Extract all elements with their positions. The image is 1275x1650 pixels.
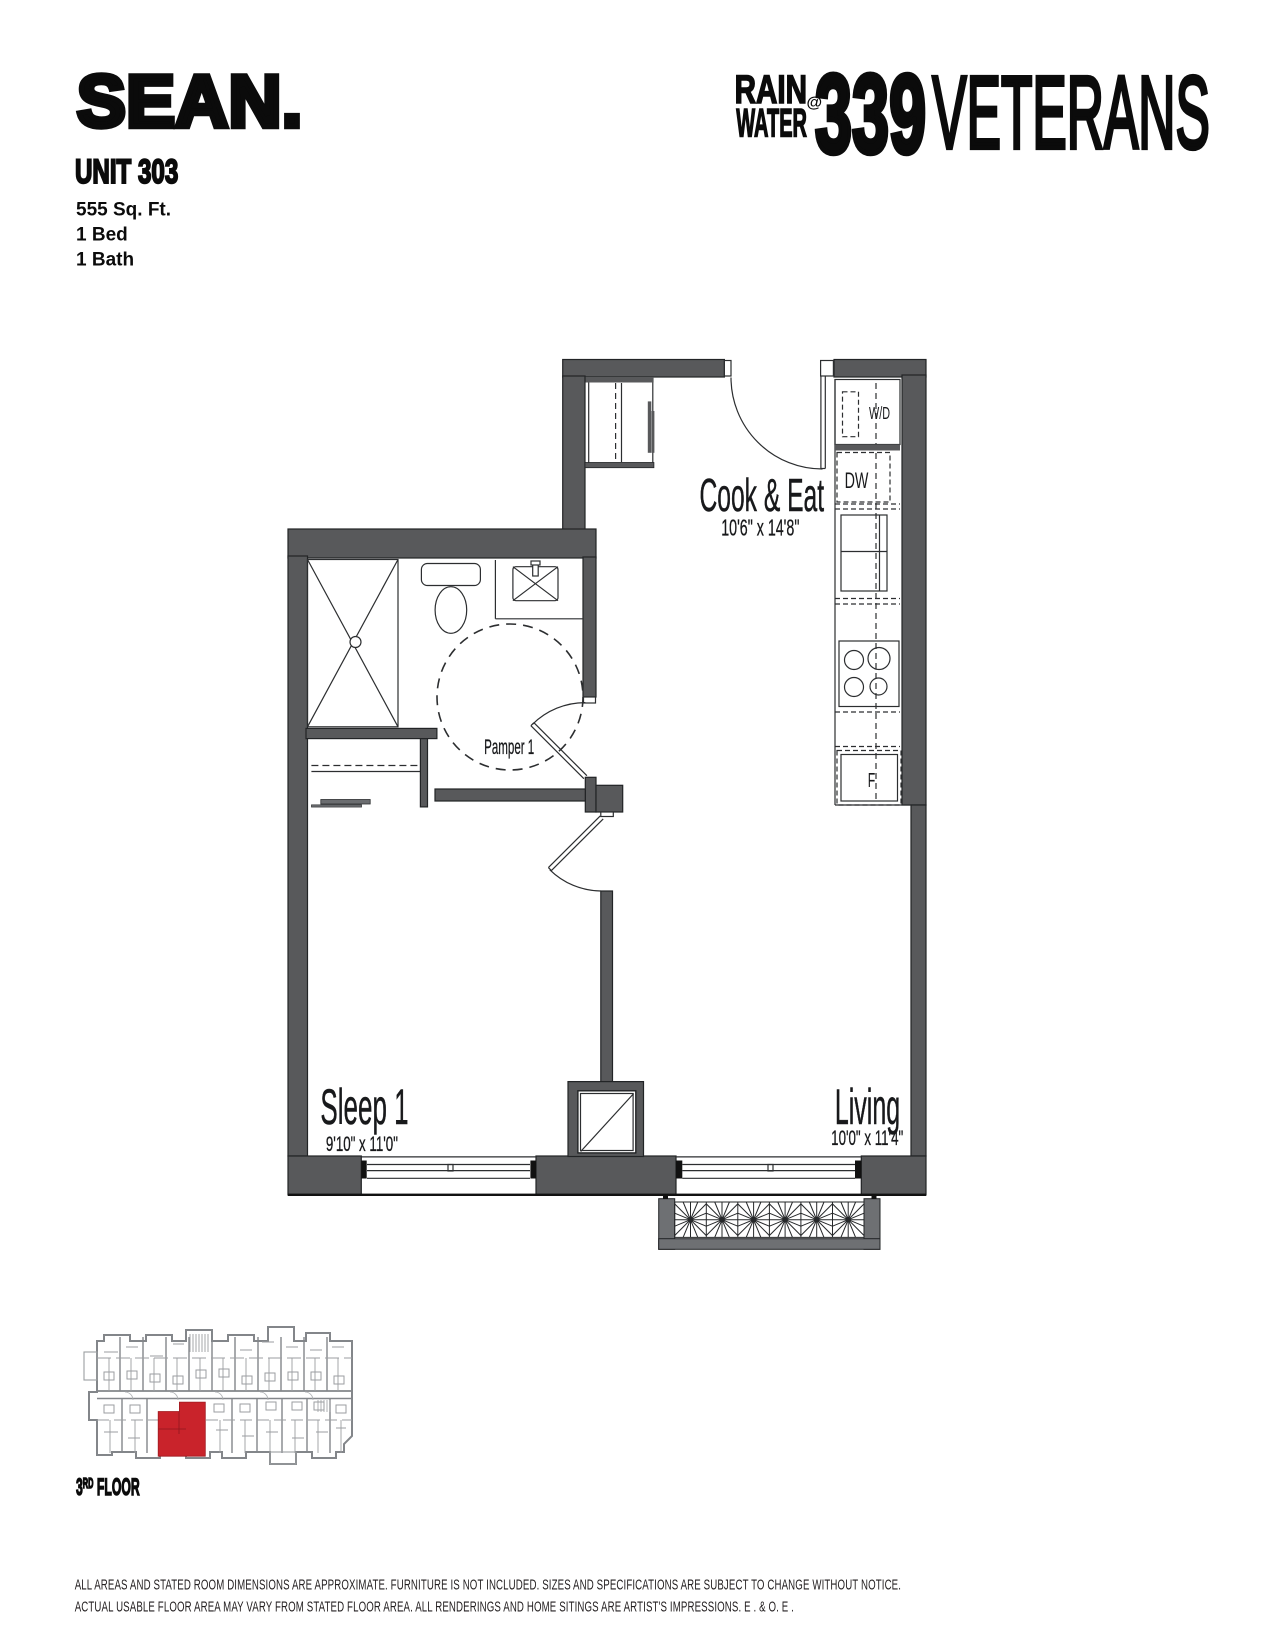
svg-text:DW: DW (845, 468, 869, 493)
svg-text:1 Bed: 1 Bed (76, 225, 128, 246)
svg-text:WATER: WATER (736, 100, 807, 146)
svg-text:SEAN.: SEAN. (77, 62, 303, 143)
svg-text:VETERANS: VETERANS (932, 56, 1210, 171)
svg-text:Sleep 1: Sleep 1 (320, 1080, 408, 1135)
svg-text:9'10" x 11'0": 9'10" x 11'0" (326, 1132, 398, 1156)
svg-text:ACTUAL USABLE FLOOR AREA MAY V: ACTUAL USABLE FLOOR AREA MAY VARY FROM S… (75, 1598, 794, 1615)
svg-text:Cook & Eat: Cook & Eat (699, 468, 824, 520)
svg-text:ALL AREAS AND STATED ROOM DIME: ALL AREAS AND STATED ROOM DIMENSIONS ARE… (75, 1576, 901, 1593)
svg-text:Pamper 1: Pamper 1 (484, 735, 534, 759)
svg-text:10'0" x 11'4": 10'0" x 11'4" (831, 1126, 903, 1150)
svg-text:1 Bath: 1 Bath (76, 249, 134, 270)
svg-text:555 Sq. Ft.: 555 Sq. Ft. (76, 200, 171, 221)
svg-text:W/D: W/D (869, 404, 890, 423)
svg-text:10'6" x 14'8": 10'6" x 14'8" (721, 516, 799, 541)
svg-text:UNIT 303: UNIT 303 (75, 153, 178, 191)
svg-text:F: F (868, 769, 876, 792)
svg-text:3RD FLOOR: 3RD FLOOR (76, 1475, 140, 1501)
svg-text:339: 339 (815, 53, 926, 177)
